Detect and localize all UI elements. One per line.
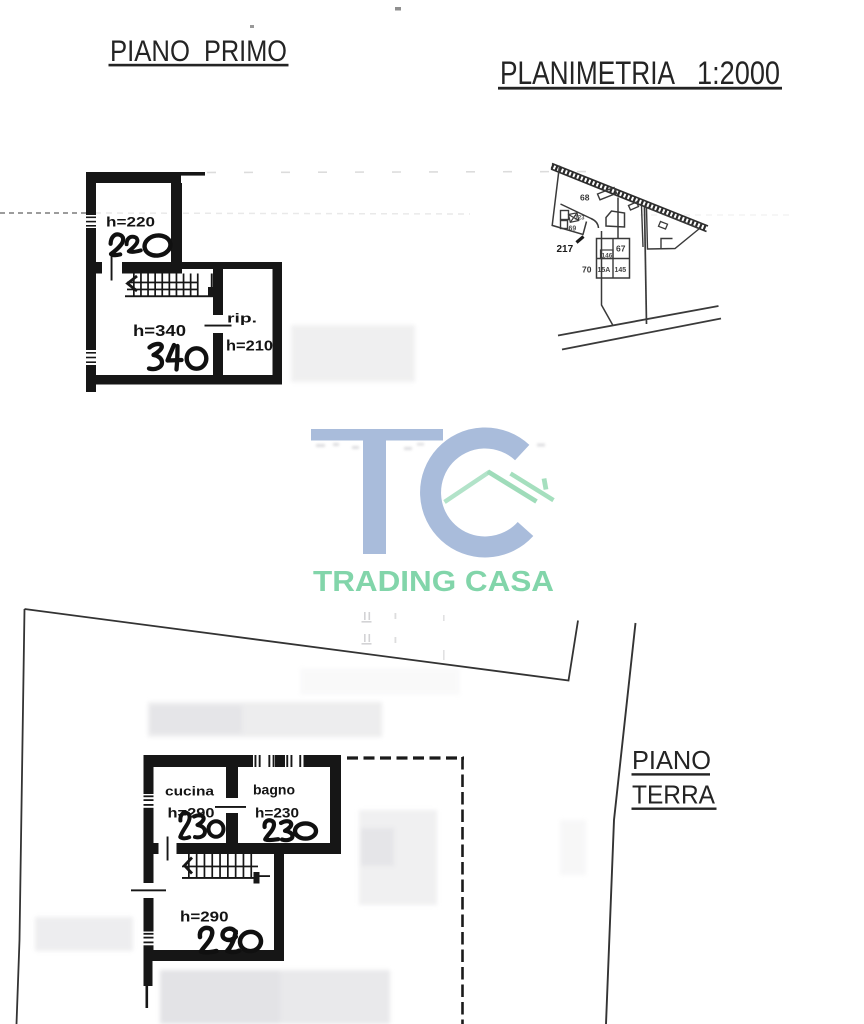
svg-text:PRIMO: PRIMO	[204, 35, 287, 68]
svg-text:rip.: rip.	[227, 312, 257, 326]
svg-text:217: 217	[557, 244, 574, 255]
svg-text:70: 70	[582, 265, 592, 275]
svg-text:145: 145	[615, 267, 627, 274]
svg-text:h=210: h=210	[226, 339, 273, 355]
svg-text:15A: 15A	[598, 267, 611, 274]
svg-text:cucina: cucina	[165, 784, 215, 799]
svg-text:68: 68	[580, 193, 590, 203]
svg-text:PIANO: PIANO	[632, 745, 711, 775]
svg-text:TERRA: TERRA	[632, 780, 716, 810]
svg-text:PIANO: PIANO	[110, 35, 190, 68]
svg-text:h=230: h=230	[255, 806, 299, 821]
svg-text:PLANIMETRIA: PLANIMETRIA	[500, 55, 676, 91]
svg-text:bagno: bagno	[253, 783, 295, 798]
svg-text:h=220: h=220	[106, 214, 155, 230]
svg-text:1:2000: 1:2000	[697, 55, 780, 91]
svg-text:67: 67	[616, 244, 626, 254]
svg-text:h=340: h=340	[133, 323, 186, 340]
svg-text:h=290: h=290	[180, 909, 229, 926]
svg-text:146: 146	[602, 253, 613, 260]
svg-text:TRADING CASA: TRADING CASA	[313, 566, 554, 598]
svg-text:69: 69	[569, 226, 577, 233]
svg-text:123: 123	[575, 216, 586, 222]
